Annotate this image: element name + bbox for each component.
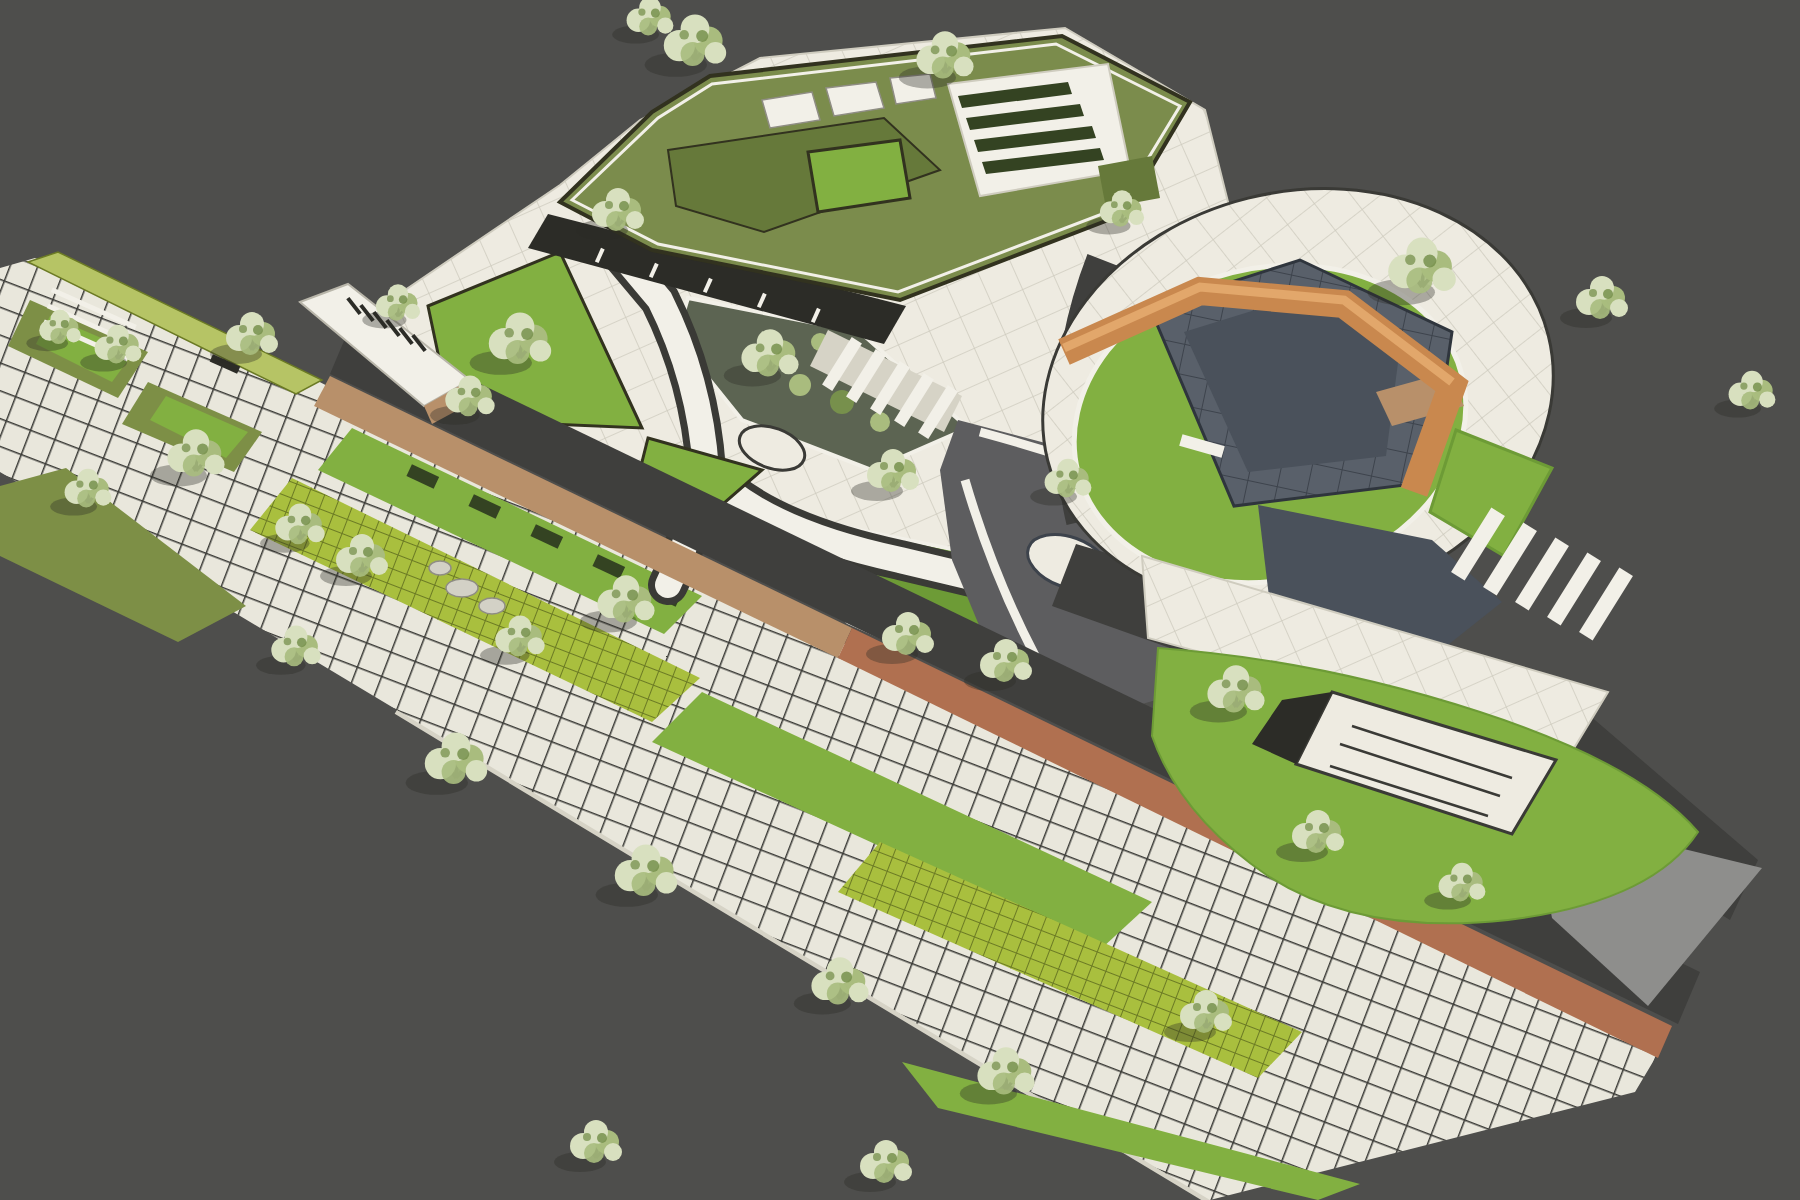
rendering-stage	[0, 0, 1800, 1200]
rooftop-courtyard	[808, 140, 910, 212]
site-plan-rendering	[0, 0, 1800, 1200]
